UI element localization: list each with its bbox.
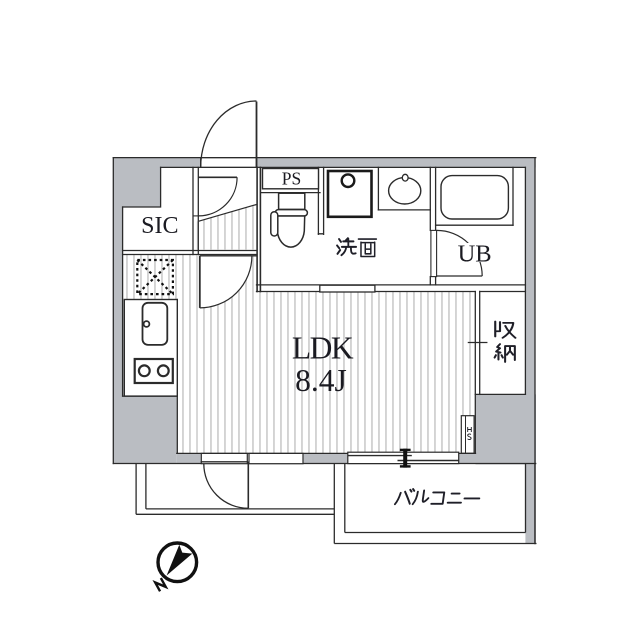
svg-text:LDK: LDK — [292, 330, 354, 365]
svg-text:PS: PS — [282, 169, 301, 189]
svg-text:SIC: SIC — [141, 213, 178, 239]
svg-text:UB: UB — [458, 240, 492, 267]
svg-text:8.4J: 8.4J — [295, 363, 347, 398]
